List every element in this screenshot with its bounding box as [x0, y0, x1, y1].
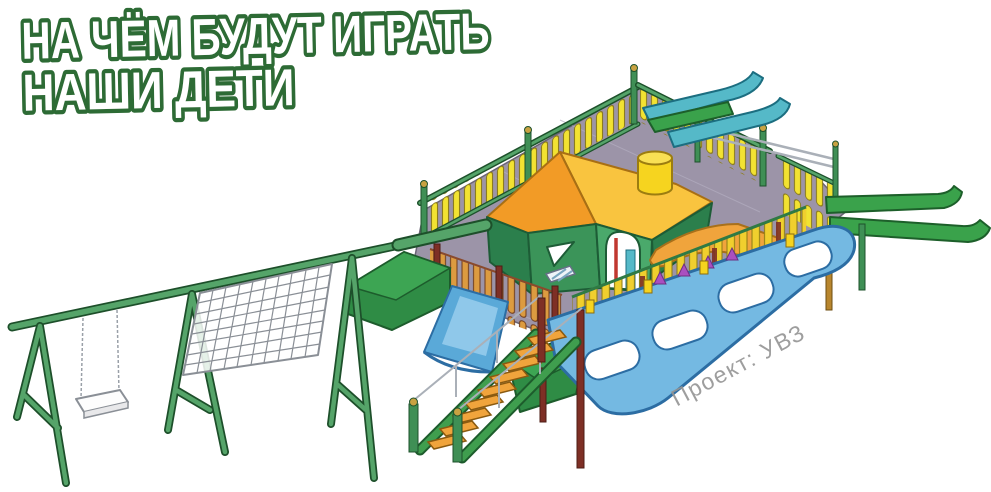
title-line-2: НАШИ ДЕТИ: [22, 59, 295, 123]
a-frame-1: [17, 326, 66, 483]
turret-wall-front-left: [528, 224, 600, 294]
playground-illustration: НА ЧЁМ БУДУТ ИГРАТЬ НАШИ ДЕТИ Проект: УВ…: [0, 0, 991, 492]
caption: НА ЧЁМ БУДУТ ИГРАТЬ НАШИ ДЕТИ: [21, 3, 491, 123]
meme-image: НА ЧЁМ БУДУТ ИГРАТЬ НАШИ ДЕТИ Проект: УВ…: [0, 0, 991, 492]
support-post: [577, 310, 584, 468]
swing-seat: [76, 310, 128, 418]
turret-cupola: [638, 152, 672, 195]
track-slide-upper: [826, 186, 962, 213]
climbing-net: [183, 264, 332, 375]
